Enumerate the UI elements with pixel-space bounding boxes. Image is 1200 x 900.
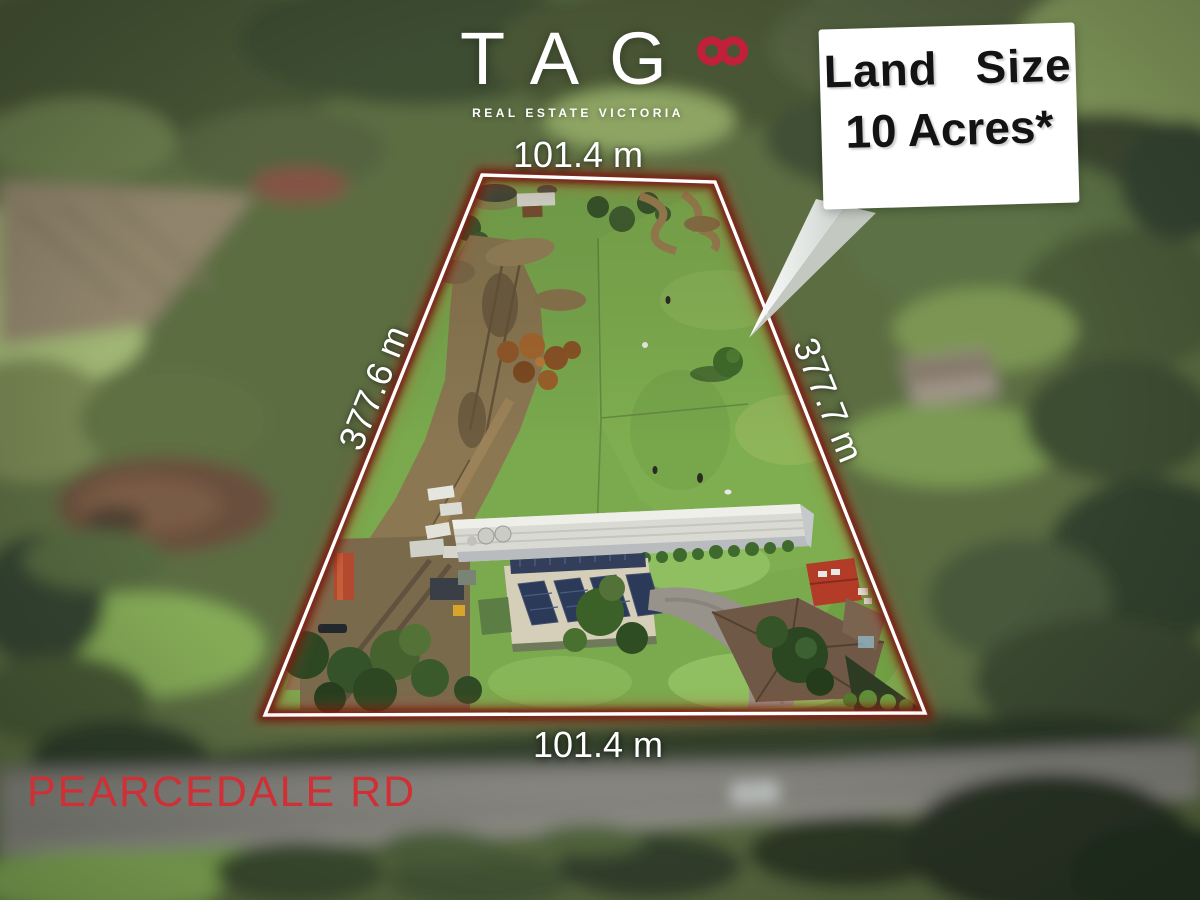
infinity-icon <box>694 30 752 72</box>
callout-acreage-value: 10 Acres* <box>820 90 1078 168</box>
callout-land-size-label: Land Size <box>819 39 1076 97</box>
brand-tagline: REAL ESTATE VICTORIA <box>428 106 728 120</box>
dimension-label-top: 101.4 m <box>513 134 643 176</box>
brand-name: TAG <box>460 16 697 101</box>
land-size-callout: Land Size 10 Acres* <box>819 22 1080 209</box>
road-name-label: PEARCEDALE RD <box>27 768 416 817</box>
dimension-label-bottom: 101.4 m <box>533 724 663 766</box>
property-marketing-image: TAG REAL ESTATE VICTORIA 101.4 m 377.6 m… <box>0 0 1200 900</box>
